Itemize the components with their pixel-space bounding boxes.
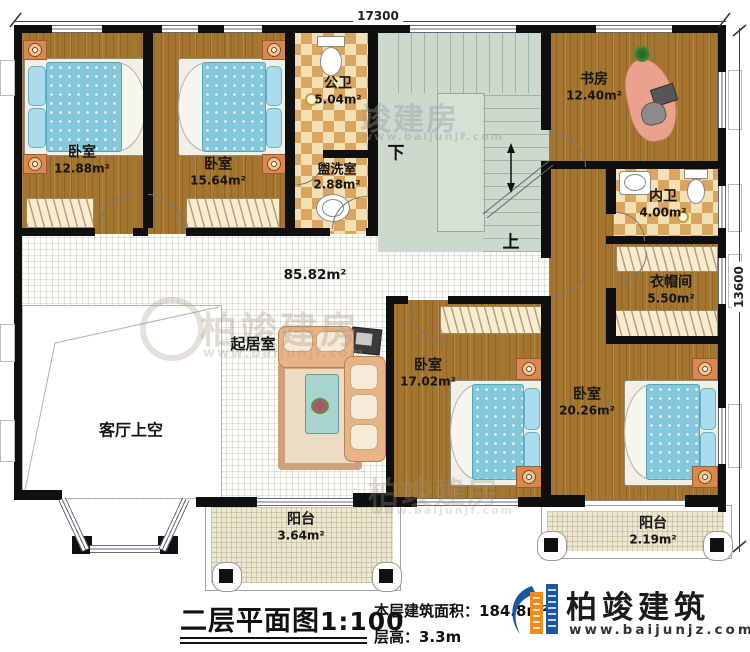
floor-plan: 17300 13600 柏竣建房 www.baijunjf.com 竣建房 ww… [0, 0, 750, 652]
room-name: 公卫 [314, 76, 361, 93]
dimension-right: 13600 [732, 262, 746, 312]
room-area: 20.26m² [559, 403, 615, 417]
room-label-bedroom-tm: 卧室 15.64m² [190, 157, 246, 188]
room-name: 衣帽间 [647, 275, 694, 292]
room-area: 15.64m² [190, 173, 246, 187]
room-area: 3.64m² [277, 528, 324, 542]
column-icon [372, 562, 402, 592]
stair-up-label: 上 [503, 228, 520, 253]
dimension-top: 17300 [353, 9, 403, 23]
column-icon [703, 531, 733, 561]
room-name: 阳台 [277, 512, 324, 529]
room-area: 2.19m² [629, 532, 676, 546]
room-name: 盥洗室 [313, 162, 360, 177]
drawing-title: 二层平面图1:100 [180, 599, 405, 638]
room-area: 12.40m² [566, 88, 622, 102]
room-label-inner-bath: 内卫 4.00m² [639, 189, 686, 220]
room-area: 17.02m² [400, 374, 456, 388]
column-icon [212, 562, 242, 592]
room-name: 卧室 [54, 145, 110, 162]
overlay-lines [0, 0, 750, 652]
room-label-balcony-right: 阳台 2.19m² [629, 516, 676, 547]
brand-name: 柏竣建筑 [566, 582, 710, 627]
room-label-void: 客厅上空 [99, 422, 163, 441]
brand-logo-icon [506, 576, 566, 648]
room-label-public-bath: 公卫 5.04m² [314, 76, 361, 107]
room-area: 12.88m² [54, 161, 110, 175]
drawing-title-text: 二层平面图 [180, 606, 320, 637]
room-label-balcony-center: 阳台 3.64m² [277, 512, 324, 543]
room-name: 卧室 [190, 157, 246, 174]
hall-area-label: 85.82m² [284, 268, 347, 284]
room-label-bedroom-tl: 卧室 12.88m² [54, 145, 110, 176]
room-label-bedroom-d: 卧室 20.26m² [559, 387, 615, 418]
room-area: 4.00m² [639, 205, 686, 219]
room-name: 阳台 [629, 516, 676, 533]
room-label-study: 书房 12.40m² [566, 72, 622, 103]
room-label-living: 起居室 [230, 336, 275, 354]
room-name: 卧室 [559, 387, 615, 404]
brand-website: www.baijunjz.com [569, 622, 750, 638]
room-label-cloakroom: 衣帽间 5.50m² [647, 275, 694, 306]
title-underline [180, 637, 367, 639]
stair-down-label: 下 [388, 139, 405, 164]
room-label-washroom: 盥洗室 2.88m² [313, 162, 360, 191]
room-name: 内卫 [639, 189, 686, 206]
room-label-bedroom-c: 卧室 17.02m² [400, 358, 456, 389]
column-icon [537, 531, 567, 561]
floor-height-note: 层高：3.3m [374, 626, 461, 647]
room-area: 5.50m² [647, 291, 694, 305]
room-name: 书房 [566, 72, 622, 89]
title-underline [180, 642, 367, 644]
room-name: 卧室 [400, 358, 456, 375]
room-area: 2.88m² [313, 178, 360, 192]
room-area: 5.04m² [314, 92, 361, 106]
